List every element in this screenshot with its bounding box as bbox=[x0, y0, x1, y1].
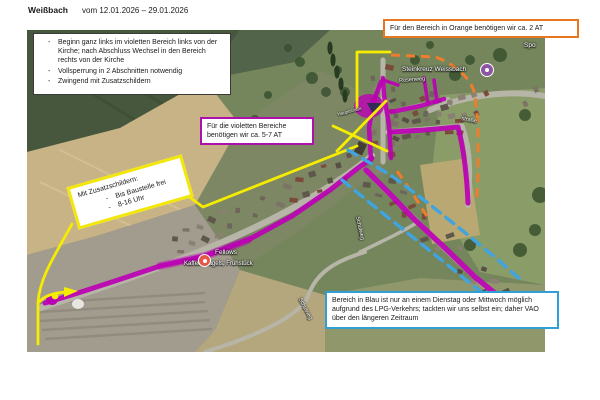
page-title: Weißbach bbox=[28, 5, 68, 15]
building bbox=[393, 114, 398, 119]
tree bbox=[513, 243, 527, 257]
building bbox=[295, 177, 304, 182]
building bbox=[429, 91, 434, 97]
tree bbox=[295, 57, 305, 67]
building bbox=[289, 197, 298, 202]
tree bbox=[264, 91, 272, 99]
start-point-dot bbox=[52, 293, 59, 300]
tree bbox=[306, 72, 318, 84]
building bbox=[436, 120, 441, 125]
building bbox=[391, 121, 399, 127]
cypress-tree bbox=[338, 78, 343, 91]
callout-violet-text: Für die violetten Bereiche benötigen wir… bbox=[207, 123, 286, 139]
building bbox=[182, 228, 189, 232]
tree bbox=[493, 48, 507, 62]
notes-item: Vollsperrung in 2 Abschnitten notwendig bbox=[40, 67, 224, 76]
date-range: vom 12.01.2026 – 29.01.2026 bbox=[82, 6, 188, 15]
header: Weißbach vom 12.01.2026 – 29.01.2026 bbox=[28, 5, 188, 15]
tree bbox=[426, 41, 434, 49]
building bbox=[177, 250, 184, 254]
callout-orange: Für den Bereich in Orange benötigen wir … bbox=[383, 19, 579, 38]
cypress-tree bbox=[334, 66, 339, 79]
notes-list: Beginn ganz links im violetten Bereich l… bbox=[40, 38, 224, 86]
tree bbox=[449, 69, 461, 81]
notes-item: Zwingend mit Zusatzschildern bbox=[40, 77, 224, 86]
notes-item: Beginn ganz links im violetten Bereich l… bbox=[40, 38, 224, 66]
dome-building bbox=[72, 299, 84, 309]
callout-violet: Für die violetten Bereiche benötigen wir… bbox=[200, 117, 314, 145]
building bbox=[445, 130, 454, 134]
building bbox=[235, 208, 240, 213]
tree bbox=[284, 44, 292, 52]
tree bbox=[519, 109, 531, 121]
page: Weißbach vom 12.01.2026 – 29.01.2026 bbox=[0, 0, 600, 400]
tree bbox=[529, 224, 541, 236]
building bbox=[401, 102, 406, 107]
cypress-tree bbox=[327, 42, 332, 55]
cypress-tree bbox=[342, 90, 347, 103]
building bbox=[172, 236, 178, 241]
building bbox=[455, 119, 464, 123]
building bbox=[363, 182, 371, 188]
tree bbox=[321, 87, 331, 97]
building bbox=[423, 111, 428, 117]
callout-blue: Bereich in Blau ist nur an einem Diensta… bbox=[325, 291, 559, 329]
callout-blue-text: Bereich in Blau ist nur an einem Diensta… bbox=[332, 297, 539, 322]
callout-orange-text: Für den Bereich in Orange benötigen wir … bbox=[390, 25, 543, 32]
building bbox=[227, 223, 232, 228]
notes-box: Beginn ganz links im violetten Bereich l… bbox=[33, 33, 231, 95]
cypress-tree bbox=[330, 54, 335, 67]
tree bbox=[465, 55, 475, 65]
